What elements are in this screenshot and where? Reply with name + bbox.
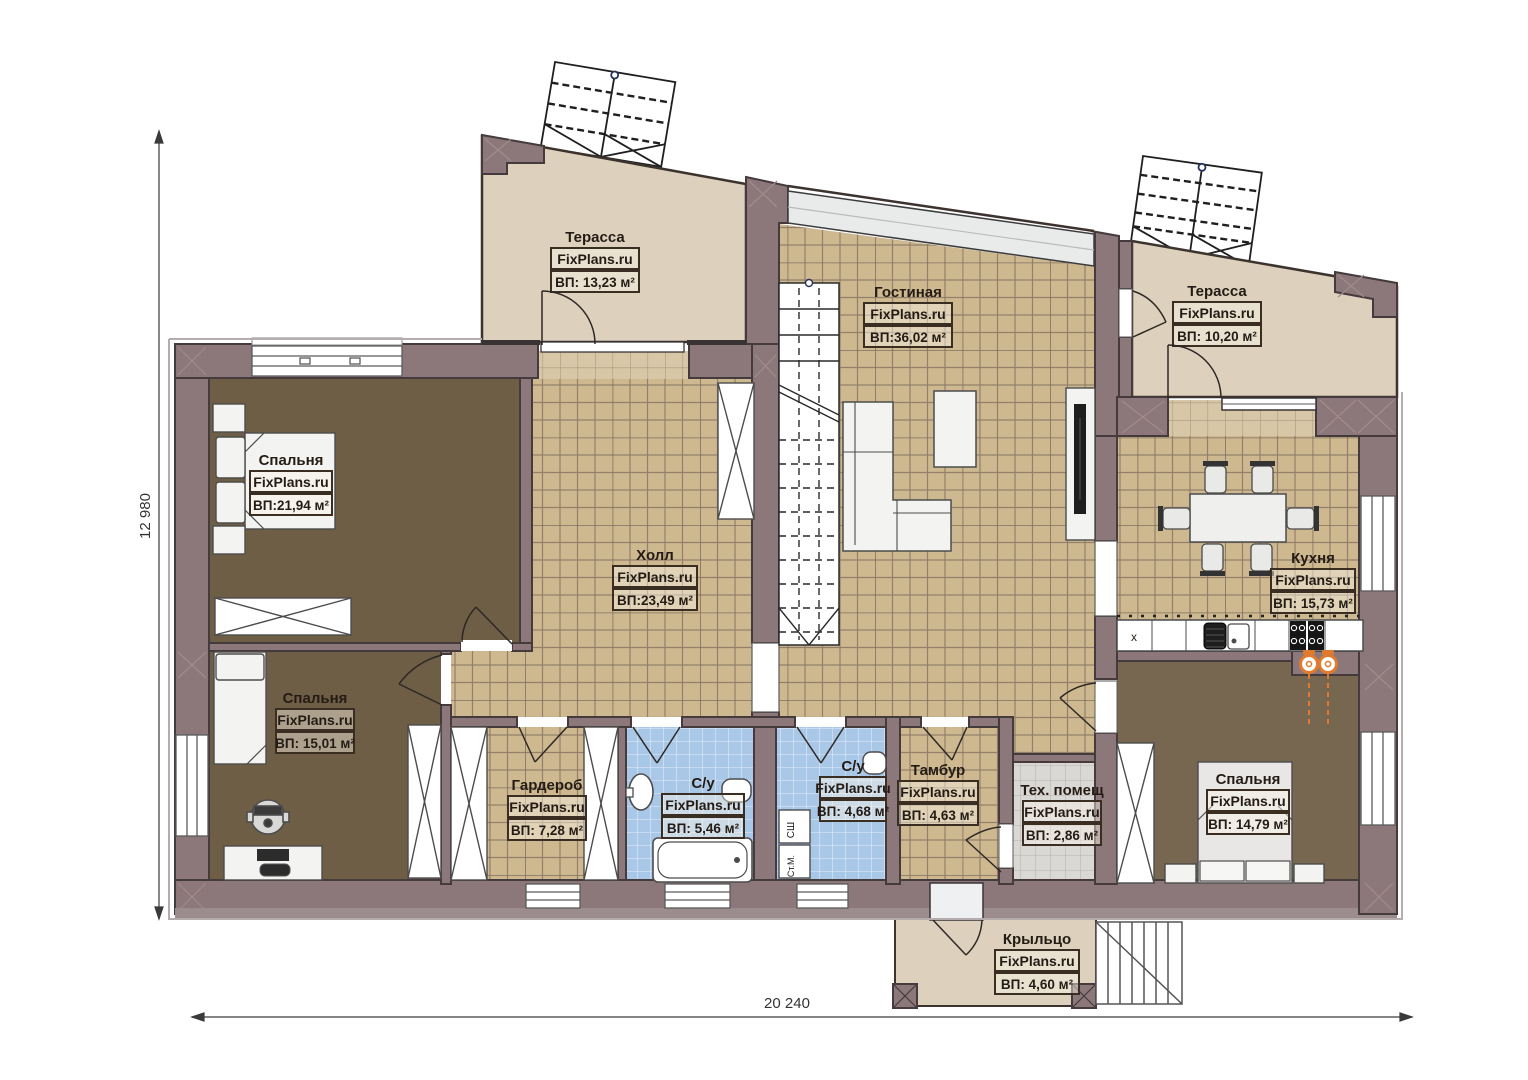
svg-text:СШ: СШ	[786, 822, 797, 838]
svg-text:ВП: 15,01 м²: ВП: 15,01 м²	[275, 736, 355, 751]
svg-text:ВП: 13,23 м²: ВП: 13,23 м²	[555, 275, 635, 290]
svg-text:Тамбур: Тамбур	[911, 762, 965, 779]
svg-text:Кухня: Кухня	[1291, 550, 1335, 567]
svg-text:Терасса: Терасса	[1187, 283, 1247, 300]
svg-text:FixPlans.ru: FixPlans.ru	[277, 712, 352, 728]
svg-text:FixPlans.ru: FixPlans.ru	[999, 953, 1074, 969]
svg-text:Крыльцо: Крыльцо	[1003, 931, 1071, 948]
svg-text:Ст.М.: Ст.М.	[786, 855, 796, 877]
svg-text:Холл: Холл	[636, 547, 674, 564]
svg-text:FixPlans.ru: FixPlans.ru	[1024, 804, 1099, 820]
svg-text:FixPlans.ru: FixPlans.ru	[1275, 572, 1350, 588]
svg-text:FixPlans.ru: FixPlans.ru	[617, 569, 692, 585]
svg-text:Терасса: Терасса	[565, 229, 625, 246]
svg-text:x: x	[1131, 630, 1137, 644]
svg-text:FixPlans.ru: FixPlans.ru	[870, 306, 945, 322]
svg-text:ВП: 15,73 м²: ВП: 15,73 м²	[1273, 596, 1353, 611]
svg-text:ВП: 10,20 м²: ВП: 10,20 м²	[1177, 329, 1257, 344]
svg-text:ВП: 4,63 м²: ВП: 4,63 м²	[902, 808, 975, 823]
svg-text:FixPlans.ru: FixPlans.ru	[557, 251, 632, 267]
svg-text:Спальня: Спальня	[1216, 771, 1281, 788]
svg-text:FixPlans.ru: FixPlans.ru	[1210, 793, 1285, 809]
svg-text:ВП:23,49 м²: ВП:23,49 м²	[617, 593, 693, 608]
svg-text:FixPlans.ru: FixPlans.ru	[900, 784, 975, 800]
svg-text:FixPlans.ru: FixPlans.ru	[665, 797, 740, 813]
svg-text:ВП:21,94 м²: ВП:21,94 м²	[253, 498, 329, 513]
svg-text:ВП: 4,68 м²: ВП: 4,68 м²	[817, 804, 890, 819]
svg-text:ВП: 5,46 м²: ВП: 5,46 м²	[667, 821, 740, 836]
svg-text:С/у: С/у	[691, 775, 715, 792]
svg-text:Гардероб: Гардероб	[512, 777, 583, 794]
svg-text:ВП: 7,28 м²: ВП: 7,28 м²	[511, 823, 584, 838]
svg-text:С/у: С/у	[841, 758, 865, 775]
svg-text:ВП: 2,86 м²: ВП: 2,86 м²	[1026, 828, 1099, 843]
svg-text:ВП:36,02 м²: ВП:36,02 м²	[870, 330, 946, 345]
svg-text:Спальня: Спальня	[259, 452, 324, 469]
svg-text:Спальня: Спальня	[283, 690, 348, 707]
svg-text:FixPlans.ru: FixPlans.ru	[815, 780, 890, 796]
svg-text:12 980: 12 980	[137, 493, 154, 539]
svg-text:Гостиная: Гостиная	[874, 284, 942, 301]
svg-text:FixPlans.ru: FixPlans.ru	[509, 799, 584, 815]
svg-text:20 240: 20 240	[764, 995, 810, 1012]
svg-text:ВП: 4,60 м²: ВП: 4,60 м²	[1001, 977, 1074, 992]
svg-text:FixPlans.ru: FixPlans.ru	[253, 474, 328, 490]
svg-text:FixPlans.ru: FixPlans.ru	[1179, 305, 1254, 321]
svg-text:ВП: 14,79 м²: ВП: 14,79 м²	[1208, 817, 1288, 832]
svg-text:Тех. помещ: Тех. помещ	[1020, 782, 1104, 799]
